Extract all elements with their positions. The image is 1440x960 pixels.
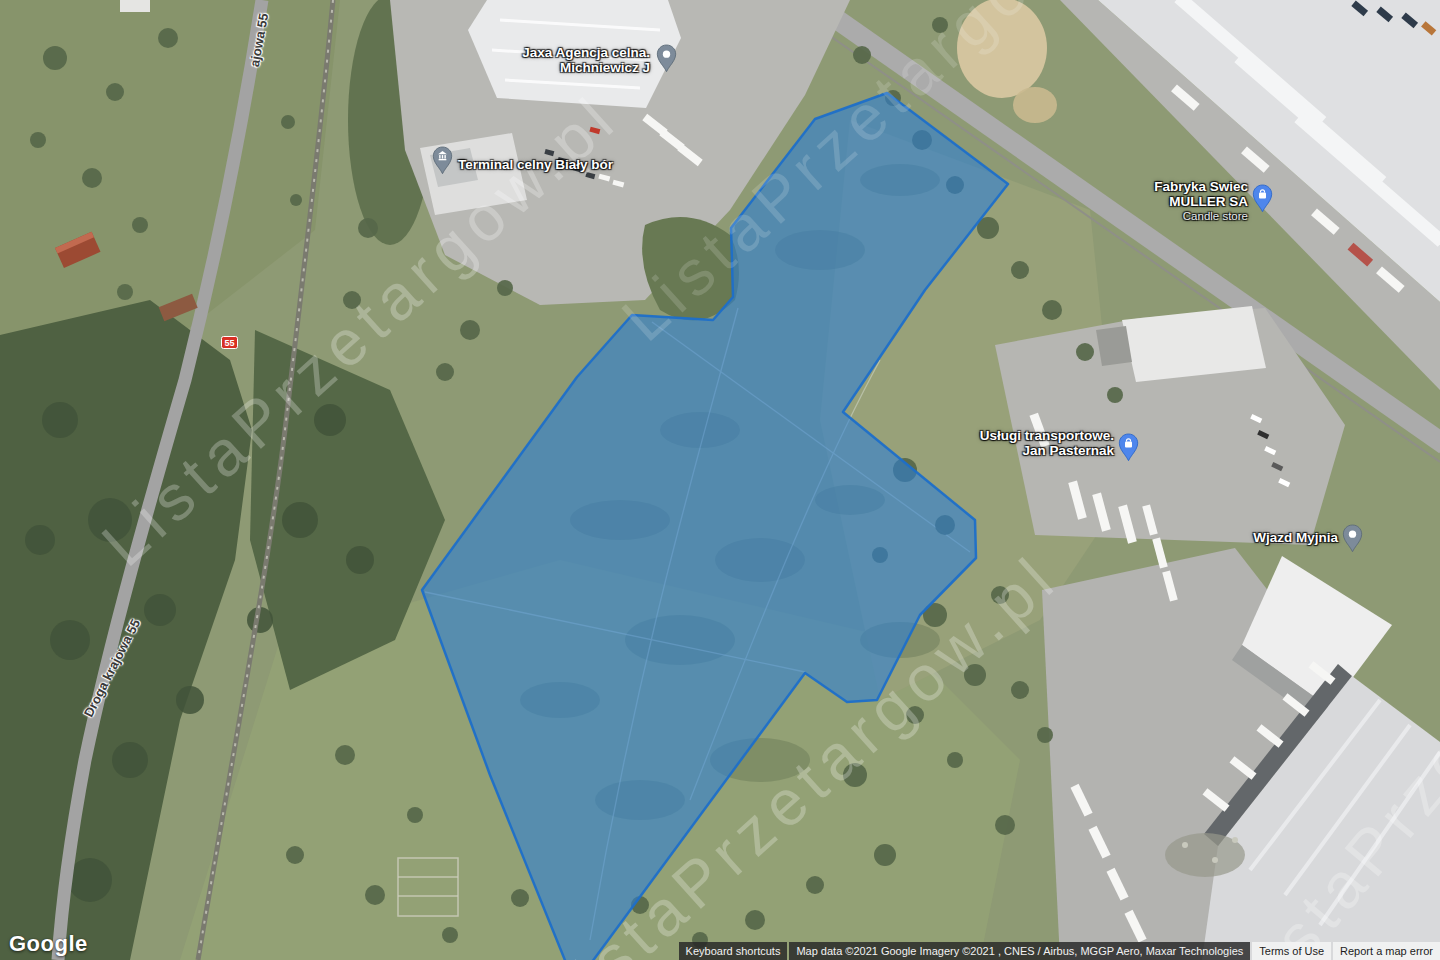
map-data-attribution: Map data ©2021 Google Imagery ©2021 , CN… xyxy=(789,942,1250,960)
poi-label-line: Jan Pasternak xyxy=(980,443,1114,458)
road-shield-55: 55 xyxy=(221,336,238,349)
poi-label-line: Wjazd Myjnia xyxy=(1253,530,1338,545)
report-map-error-link[interactable]: Report a map error xyxy=(1333,942,1440,960)
poi-label-line: Fabryka Swiec xyxy=(1154,179,1248,194)
poi-label-line: Michniewicz J xyxy=(522,60,650,75)
parcel-polygon[interactable] xyxy=(422,93,1008,960)
poi-label-line: MULLER SA xyxy=(1154,194,1248,209)
pin-dot-icon xyxy=(1349,531,1356,538)
pin-dot-icon xyxy=(663,51,670,58)
keyboard-shortcuts-button[interactable]: Keyboard shortcuts xyxy=(679,942,788,960)
poi-label-wjazd[interactable]: Wjazd Myjnia xyxy=(1253,530,1338,545)
terms-of-use-link[interactable]: Terms of Use xyxy=(1252,942,1331,960)
poi-label-jaxa[interactable]: Jaxa Agencja celna. Michniewicz J xyxy=(522,45,650,75)
poi-label-terminal[interactable]: Terminal celny Biały bór xyxy=(458,157,613,172)
poi-pin-jaxa[interactable] xyxy=(656,44,677,74)
poi-label-line: Jaxa Agencja celna. xyxy=(522,45,650,60)
map-canvas[interactable]: ListaPrzetargow.pl ListaPrzetargow.pl Li… xyxy=(0,0,1440,960)
parcel-overlay xyxy=(0,0,1440,960)
poi-label-fabryka[interactable]: Fabryka Swiec MULLER SA Candle store xyxy=(1154,179,1248,224)
poi-pin-terminal[interactable] xyxy=(432,146,453,176)
poi-label-subline: Candle store xyxy=(1154,209,1248,224)
poi-pin-wjazd[interactable] xyxy=(1342,524,1363,554)
poi-label-uslugi[interactable]: Usługi transportowe. Jan Pasternak xyxy=(980,428,1114,458)
poi-pin-fabryka[interactable] xyxy=(1252,184,1273,214)
poi-pin-uslugi[interactable] xyxy=(1118,433,1139,463)
poi-label-line: Usługi transportowe. xyxy=(980,428,1114,443)
poi-label-line: Terminal celny Biały bór xyxy=(458,157,613,172)
attribution-bar: Keyboard shortcuts Map data ©2021 Google… xyxy=(677,942,1440,960)
google-logo[interactable]: Google xyxy=(9,931,88,957)
